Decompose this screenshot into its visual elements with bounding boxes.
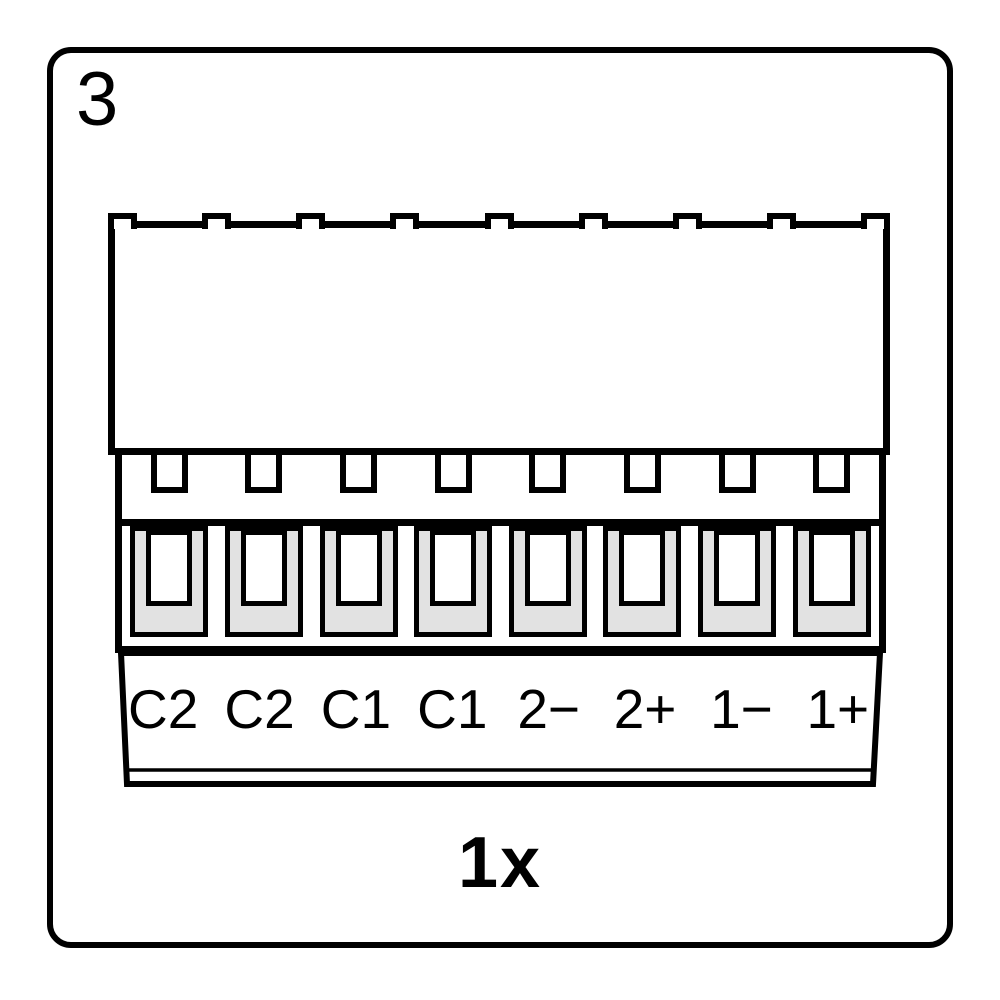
connector-mid-strip <box>115 455 886 519</box>
terminal-slot <box>146 531 192 606</box>
terminal-cell <box>603 526 681 637</box>
latch-hole <box>624 455 661 493</box>
latch-hole <box>529 455 566 493</box>
quantity-label: 1x <box>0 827 1000 899</box>
latch-hole <box>719 455 756 493</box>
pin-label: C2 <box>211 679 307 739</box>
top-tab <box>673 213 702 229</box>
pin-label: 2− <box>501 679 597 739</box>
terminal-slot <box>241 531 287 606</box>
terminal-slot <box>336 531 382 606</box>
terminal-slot <box>430 531 476 606</box>
latch-hole <box>340 455 377 493</box>
terminal-slot <box>525 531 571 606</box>
pin-label: C1 <box>404 679 500 739</box>
terminal-cell <box>509 526 587 637</box>
latch-hole <box>813 455 850 493</box>
top-tab <box>767 213 796 229</box>
terminal-block-connector: C2 C2 C1 C1 2− 2+ 1− 1+ <box>108 213 890 793</box>
latch-hole <box>151 455 188 493</box>
top-tab <box>108 213 137 229</box>
top-tab <box>202 213 231 229</box>
terminal-cell <box>225 526 303 637</box>
step-number: 3 <box>76 62 118 138</box>
pin-label: C2 <box>115 679 211 739</box>
terminal-slot <box>619 531 665 606</box>
terminal-cell <box>698 526 776 637</box>
terminal-row <box>115 519 886 653</box>
terminal-slot <box>809 531 855 606</box>
pin-label: 2+ <box>597 679 693 739</box>
terminal-slot <box>714 531 760 606</box>
terminal-cell <box>414 526 492 637</box>
pin-label: C1 <box>308 679 404 739</box>
pin-labels: C2 C2 C1 C1 2− 2+ 1− 1+ <box>115 679 886 739</box>
top-tab <box>485 213 514 229</box>
terminal-cell <box>793 526 871 637</box>
top-tab <box>390 213 419 229</box>
connector-housing <box>108 221 890 455</box>
top-tab <box>861 213 890 229</box>
top-tab <box>579 213 608 229</box>
connector-top-tabs <box>108 213 890 229</box>
latch-hole <box>435 455 472 493</box>
instruction-step-panel: 3 <box>0 0 1000 1000</box>
top-tab <box>296 213 325 229</box>
terminal-cell <box>320 526 398 637</box>
pin-label: 1− <box>693 679 789 739</box>
pin-label: 1+ <box>790 679 886 739</box>
latch-hole <box>245 455 282 493</box>
terminal-cell <box>130 526 208 637</box>
